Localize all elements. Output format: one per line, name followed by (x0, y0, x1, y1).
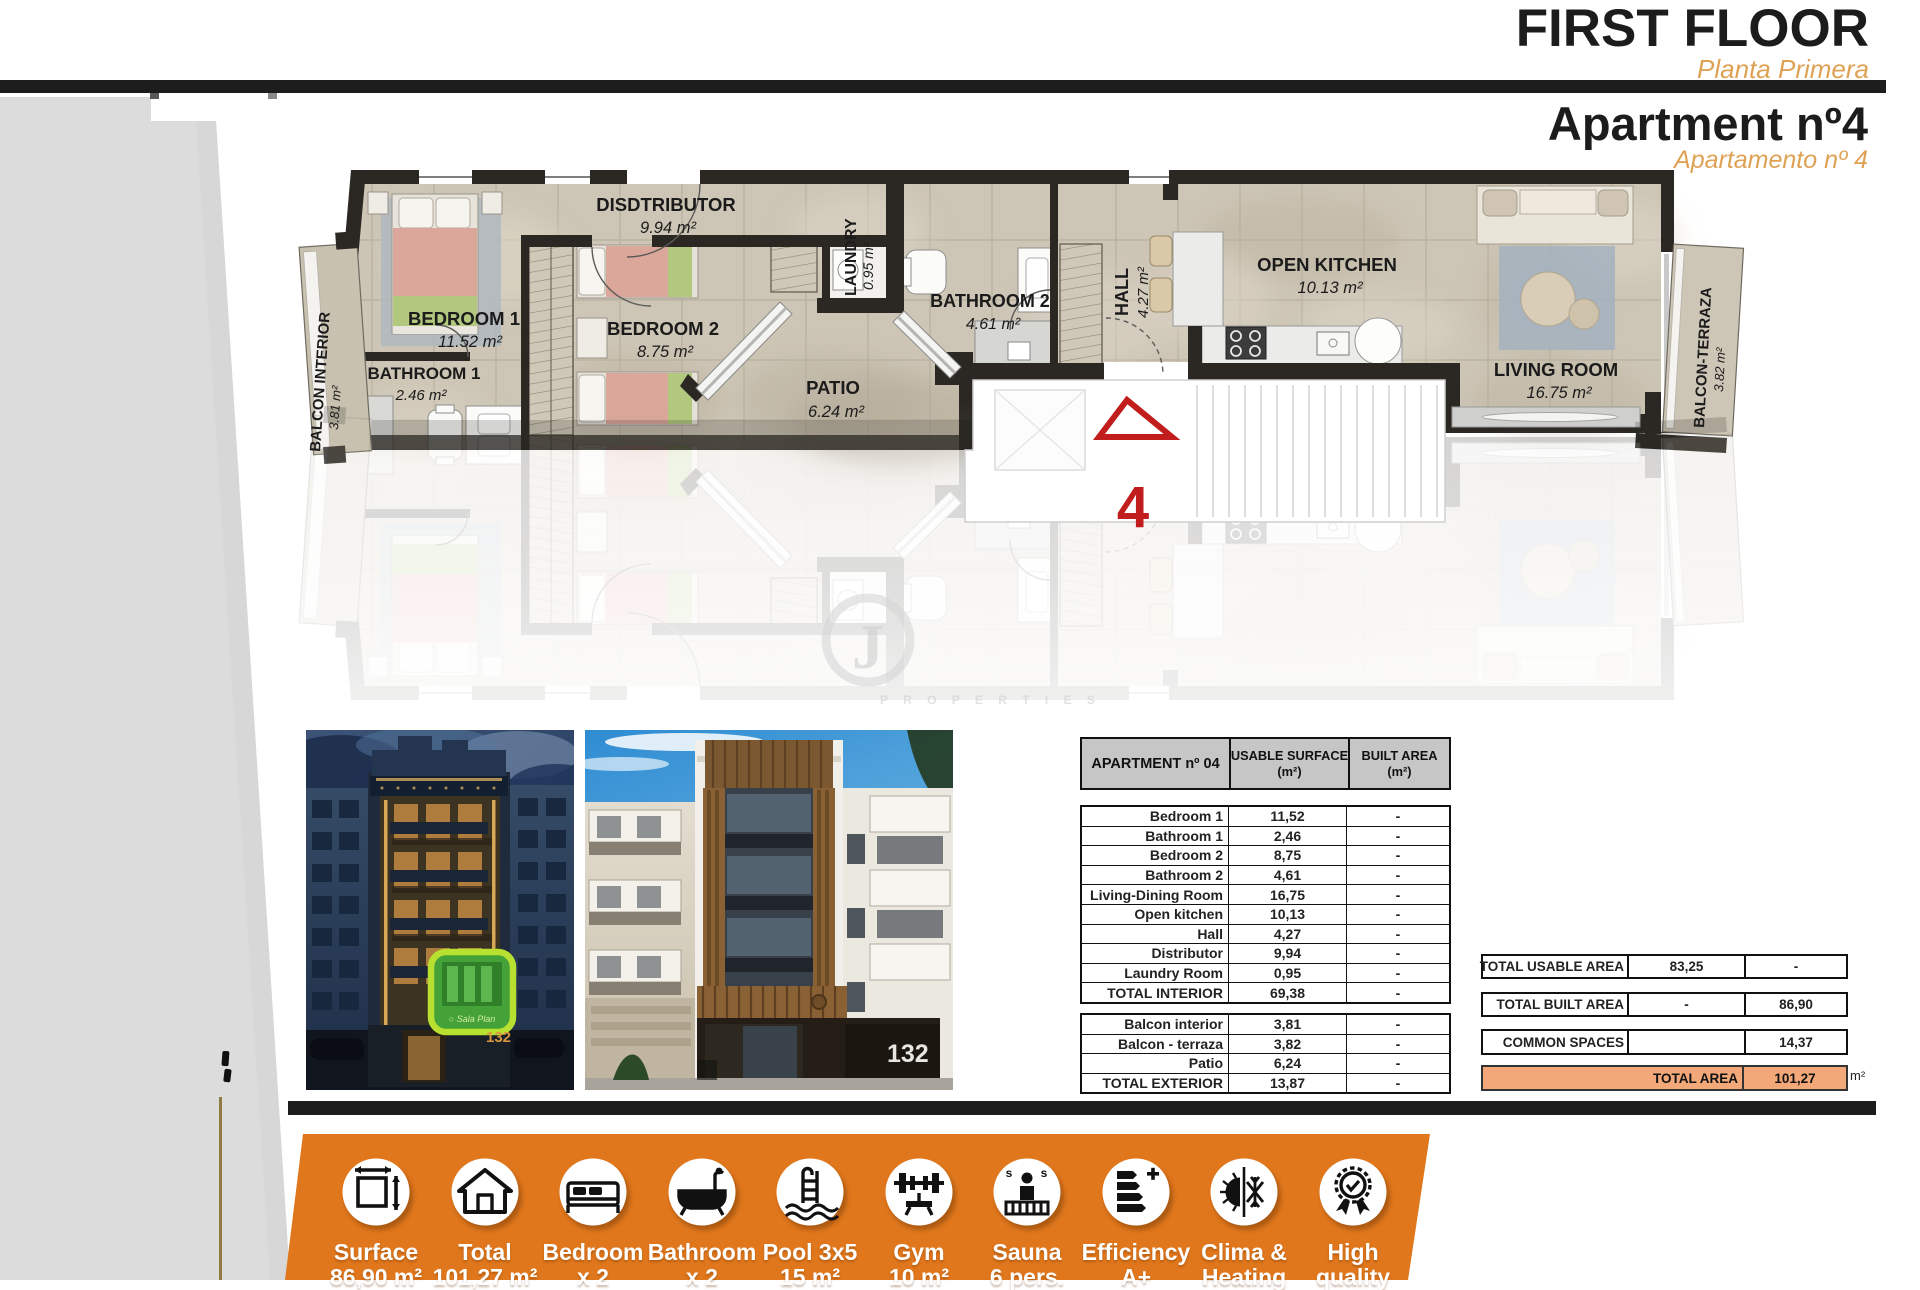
svg-text:9.94 m²: 9.94 m² (640, 219, 696, 237)
svg-text:BEDROOM 1: BEDROOM 1 (408, 308, 520, 329)
svg-text:○ Sala Plan: ○ Sala Plan (449, 1014, 495, 1024)
svg-text:3.81 m²: 3.81 m² (326, 385, 344, 431)
svg-text:BATHROOM 1: BATHROOM 1 (367, 364, 480, 383)
svg-text:BEDROOM 2: BEDROOM 2 (607, 318, 719, 339)
svg-text:8.75 m²: 8.75 m² (637, 343, 693, 361)
svg-text:4.27 m²: 4.27 m² (1135, 266, 1152, 318)
svg-text:LAUNDRY: LAUNDRY (843, 218, 860, 296)
svg-text:2.46 m²: 2.46 m² (395, 387, 448, 404)
svg-text:LIVING ROOM: LIVING ROOM (1494, 359, 1618, 380)
svg-text:132: 132 (887, 1040, 929, 1068)
svg-text:4.61 m²: 4.61 m² (966, 316, 1021, 333)
svg-text:J: J (852, 611, 884, 682)
svg-text:OPEN KITCHEN: OPEN KITCHEN (1257, 254, 1397, 275)
svg-text:BATHROOM 2: BATHROOM 2 (930, 291, 1050, 311)
svg-text:10.13 m²: 10.13 m² (1297, 279, 1363, 297)
svg-text:P R O P E R T I E S: P R O P E R T I E S (880, 693, 1101, 707)
svg-text:4: 4 (1117, 475, 1149, 540)
svg-text:HALL: HALL (1112, 268, 1132, 316)
svg-text:16.75 m²: 16.75 m² (1526, 384, 1592, 402)
svg-text:PATIO: PATIO (806, 377, 860, 398)
svg-text:6.24 m²: 6.24 m² (808, 403, 864, 421)
svg-text:132: 132 (486, 1029, 511, 1046)
svg-text:3.82 m²: 3.82 m² (1711, 347, 1728, 392)
svg-text:0.95 m²: 0.95 m² (860, 241, 876, 290)
svg-text:DISDTRIBUTOR: DISDTRIBUTOR (596, 194, 735, 215)
svg-text:11.52 m²: 11.52 m² (438, 333, 502, 351)
